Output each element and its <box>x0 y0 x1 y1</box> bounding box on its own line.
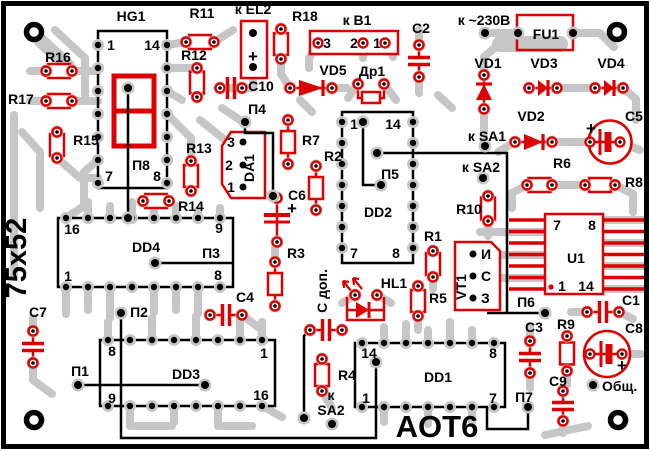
component-pad-hole <box>31 329 35 333</box>
label-p7: П7 <box>515 389 533 405</box>
label-k-sa2-bottom-sa2: SA2 <box>317 402 344 418</box>
label-p4: П4 <box>248 101 266 117</box>
label-dd3: DD3 <box>172 366 200 382</box>
label-r10: R10 <box>456 201 482 217</box>
component-pad-hole <box>353 293 357 297</box>
label-p3: П3 <box>202 245 220 261</box>
pcb-board: HG1 1 14 7 8 П8 R16 R17 R15 R11 R12 R13 … <box>0 0 650 451</box>
solder-dot <box>151 259 159 267</box>
pin-dot <box>193 403 199 409</box>
component-pad-hole <box>314 208 318 212</box>
solder-dot <box>514 29 522 37</box>
label-c10: C10 <box>248 78 274 94</box>
component-pad-hole <box>320 389 324 393</box>
solder-dot <box>269 192 277 200</box>
component-pad-hole <box>550 140 554 144</box>
pin-dot <box>470 251 477 258</box>
label-r11: R11 <box>190 5 215 21</box>
component-pad-hole <box>528 339 532 343</box>
label-r9: R9 <box>557 316 575 332</box>
label-b1-pin2: 2 <box>350 35 358 51</box>
component-pad-hole <box>417 43 421 47</box>
component-pad-hole <box>613 183 617 187</box>
pin-dot <box>95 65 101 71</box>
resistor-body <box>274 33 288 55</box>
component-pad-hole <box>55 156 59 160</box>
label-k-b1: к В1 <box>343 12 372 28</box>
resistor-body <box>184 165 198 187</box>
label-hg1: HG1 <box>117 8 146 24</box>
label-u1-pin1: 1 <box>558 278 566 294</box>
pin-dot <box>259 337 265 343</box>
label-c3: C3 <box>525 319 543 335</box>
label-dr1: Др1 <box>359 63 386 79</box>
component-pad-hole <box>279 57 283 61</box>
label-r4: R4 <box>338 367 356 383</box>
pin-dot <box>95 111 101 117</box>
label-c5: C5 <box>625 108 643 124</box>
solder-dot <box>201 381 209 389</box>
label-r12: R12 <box>181 47 207 63</box>
component-pad-hole <box>273 304 277 308</box>
label-c1: C1 <box>622 292 640 308</box>
label-c8: C8 <box>625 320 643 336</box>
pin-dot <box>339 182 345 188</box>
pin-dot <box>339 140 345 146</box>
component-pad-hole <box>382 82 386 86</box>
solder-dot <box>479 174 487 182</box>
pin-dot <box>339 224 345 230</box>
label-c4: C4 <box>236 289 254 305</box>
solder-dot <box>589 381 597 389</box>
label-vd4: VD4 <box>597 55 624 71</box>
c6-plus-sign: + <box>287 199 297 218</box>
pin-dot <box>129 284 135 290</box>
label-u1: U1 <box>567 250 585 266</box>
pin-dot <box>164 134 170 140</box>
pin-dot <box>403 340 409 346</box>
pin-dot <box>107 215 113 221</box>
pin-dot <box>240 184 247 191</box>
pin-dot <box>164 180 170 186</box>
component-pad-hole <box>617 310 621 314</box>
solder-dot <box>241 118 249 126</box>
label-r3: R3 <box>287 245 305 261</box>
label-r14: R14 <box>178 198 204 214</box>
label-r13: R13 <box>186 140 212 156</box>
pin-dot <box>173 284 179 290</box>
label-u1-pin8: 8 <box>588 217 596 233</box>
component-pad-hole <box>482 107 486 111</box>
component-pad-hole <box>561 389 565 393</box>
component-pad-hole <box>486 194 490 198</box>
component-pad-hole <box>431 249 435 253</box>
component-pad-hole <box>320 357 324 361</box>
label-dd1-pin7: 7 <box>489 390 497 406</box>
pin-dot <box>215 403 221 409</box>
label-k-sa2: к SA2 <box>462 159 500 175</box>
label-u1-pin7: 7 <box>553 217 561 233</box>
pin-dot <box>249 29 257 37</box>
copper-trace <box>545 426 588 435</box>
label-dd1: DD1 <box>424 369 452 385</box>
component-pad-hole <box>240 86 244 90</box>
solder-dot <box>328 420 336 428</box>
pin-dot <box>410 224 416 230</box>
resistor-body <box>560 343 574 365</box>
label-dd2: DD2 <box>364 204 392 220</box>
pin-dot <box>237 403 243 409</box>
component-pad-hole <box>565 334 569 338</box>
label-k-sa2-bottom-k: к <box>327 387 335 403</box>
component-pad-hole <box>330 86 334 90</box>
label-vt1-drain: С <box>481 268 491 284</box>
label-dd4: DD4 <box>132 239 160 255</box>
component-pad-hole <box>513 140 517 144</box>
label-r18: R18 <box>292 8 318 24</box>
pin-dot <box>215 337 221 343</box>
label-p8: П8 <box>132 157 150 173</box>
label-dd1-pin8: 8 <box>489 345 497 361</box>
pin-dot <box>339 203 345 209</box>
label-r5: R5 <box>429 290 447 306</box>
label-p5: П5 <box>381 166 399 182</box>
diode-triangle <box>299 80 323 96</box>
label-vt1-source: И <box>481 246 491 262</box>
pcb-layout-diagram: HG1 1 14 7 8 П8 R16 R17 R15 R11 R12 R13 … <box>0 0 650 451</box>
solder-dot <box>569 29 577 37</box>
label-hg1-pin7: 7 <box>105 168 113 184</box>
component-pad-hole <box>286 162 290 166</box>
mounting-hole-bottom-left <box>27 413 42 428</box>
label-da1-pin1: 1 <box>227 179 235 195</box>
component-pad-hole <box>308 328 312 332</box>
component-pad-hole <box>555 86 559 90</box>
resistor-body <box>190 72 204 94</box>
el2-plus-sign: + <box>248 47 258 66</box>
pin-dot <box>85 284 91 290</box>
label-dd4-pin8: 8 <box>214 267 222 283</box>
pin-dot <box>95 180 101 186</box>
pin-dot <box>151 215 157 221</box>
label-dd2-pin7: 7 <box>350 245 358 261</box>
label-r8: R8 <box>625 174 643 190</box>
label-p6: П6 <box>517 294 535 310</box>
component-pad-hole <box>361 41 365 45</box>
label-fu1: FU1 <box>533 26 560 42</box>
copper-trace <box>300 100 312 112</box>
pin-dot <box>127 403 133 409</box>
solder-dot <box>377 181 385 189</box>
pin-dot <box>63 284 69 290</box>
copper-trace <box>22 132 40 208</box>
component-pad-hole <box>184 40 188 44</box>
label-r17: R17 <box>8 91 34 107</box>
component-pad-hole <box>482 73 486 77</box>
pin-dot <box>470 295 477 302</box>
component-pad-hole <box>550 183 554 187</box>
label-hl1: HL1 <box>381 275 408 291</box>
mounting-hole-top-left <box>27 25 42 40</box>
component-pad-hole <box>340 328 344 332</box>
component-pad-hole <box>316 41 320 45</box>
component-pad-hole <box>356 82 360 86</box>
component-pad-hole <box>561 419 565 423</box>
label-dd1-pin14: 14 <box>361 345 377 361</box>
label-k-el2: к EL2 <box>235 1 272 17</box>
pin-dot <box>410 245 416 251</box>
solder-dot <box>117 309 125 317</box>
label-dd4-pin9: 9 <box>215 220 223 236</box>
label-vt1: VT1 <box>453 274 469 300</box>
label-board-size: 75x52 <box>1 218 33 299</box>
label-r1: R1 <box>424 228 442 244</box>
label-vt1-gate: З <box>481 290 490 306</box>
label-k-sa1: к SA1 <box>468 128 506 144</box>
pin-dot <box>195 215 201 221</box>
component-pad-hole <box>279 27 283 31</box>
label-r7: R7 <box>302 132 320 148</box>
solder-dot <box>74 381 82 389</box>
pin-dot <box>95 88 101 94</box>
pin-dot <box>171 403 177 409</box>
resistor-body <box>315 364 329 386</box>
label-hg1-pin8: 8 <box>153 168 161 184</box>
label-vd5: VD5 <box>319 62 346 78</box>
mounting-hole-top-right <box>610 25 625 40</box>
pin-dot <box>425 340 431 346</box>
pin-dot <box>195 284 201 290</box>
label-dd4-pin16: 16 <box>64 221 80 237</box>
component-pad-hole <box>583 183 587 187</box>
component-pad-hole <box>588 352 592 356</box>
diode-triangle <box>524 134 543 150</box>
solder-dot <box>124 214 132 222</box>
label-dd4-pin1: 1 <box>64 268 72 284</box>
label-vd3: VD3 <box>530 55 557 71</box>
component-pad-hole <box>70 69 74 73</box>
pin-dot <box>95 157 101 163</box>
pin-dot <box>381 340 387 346</box>
component-pad-hole <box>431 275 435 279</box>
label-hg1-pin1: 1 <box>107 37 115 53</box>
pin-dot <box>381 404 387 410</box>
resistor-body <box>589 178 611 192</box>
copper-trace <box>438 95 452 108</box>
component-pad-hole <box>218 86 222 90</box>
pin-dot <box>164 42 170 48</box>
label-b1-pin3: 3 <box>323 35 331 51</box>
pin-dot <box>237 337 243 343</box>
pin-dot <box>469 340 475 346</box>
label-k-230v: к ~230В <box>458 12 511 28</box>
component-pad-hole <box>588 140 592 144</box>
label-vd2: VD2 <box>517 108 544 124</box>
label-da1-pin2: 2 <box>225 157 233 173</box>
pin-dot <box>149 403 155 409</box>
pin-dot <box>107 284 113 290</box>
component-pad-hole <box>593 86 597 90</box>
label-dd2-pin1: 1 <box>350 116 358 132</box>
label-r15: R15 <box>73 132 99 148</box>
label-hg1-pin14: 14 <box>144 37 160 53</box>
resistor-body <box>281 131 295 153</box>
component-pad-hole <box>286 118 290 122</box>
mounting-hole-bottom-right <box>611 413 626 428</box>
diode-triangle <box>476 84 492 100</box>
pin-dot <box>95 42 101 48</box>
component-pad-hole <box>288 86 292 90</box>
pin-dot <box>470 273 477 280</box>
label-c9: C9 <box>549 373 567 389</box>
solder-dot <box>359 118 367 126</box>
component-pad-hole <box>31 361 35 365</box>
label-p1: П1 <box>71 363 89 379</box>
component-pad-hole <box>195 66 199 70</box>
solder-dot <box>541 309 549 317</box>
label-dd3-pin1: 1 <box>260 345 268 361</box>
jumper-wire <box>304 330 309 418</box>
component-pad-hole <box>527 86 531 90</box>
component-pad-hole <box>618 140 622 144</box>
pin-dot <box>164 111 170 117</box>
pin-dot <box>173 215 179 221</box>
pin-dot <box>127 337 133 343</box>
pin-dot <box>339 119 345 125</box>
pin-dot <box>447 340 453 346</box>
pin-dot <box>217 284 223 290</box>
component-pad-hole <box>44 69 48 73</box>
pin-dot <box>240 139 247 146</box>
label-dd1-pin1: 1 <box>362 390 370 406</box>
pin-dot <box>164 65 170 71</box>
pin-dot <box>410 119 416 125</box>
label-dd2-pin8: 8 <box>392 245 400 261</box>
label-c7: C7 <box>29 304 47 320</box>
component-pad-hole <box>273 260 277 264</box>
component-pad-hole <box>417 75 421 79</box>
pin-dot <box>171 337 177 343</box>
component-pad-hole <box>212 40 216 44</box>
label-dd3-pin9: 9 <box>108 390 116 406</box>
pin-dot <box>410 203 416 209</box>
c5-plus-sign: + <box>586 119 596 138</box>
solder-dot <box>373 149 381 157</box>
c8-plus-sign: + <box>617 356 627 375</box>
component-pad-hole <box>375 293 379 297</box>
u1-pin1-dot <box>548 284 553 289</box>
component-pad-hole <box>416 284 420 288</box>
label-p2: П2 <box>130 304 148 320</box>
component-pad-hole <box>621 86 625 90</box>
component-pad-hole <box>70 99 74 103</box>
component-pad-hole <box>167 199 171 203</box>
label-da1-pin3: 3 <box>227 134 235 150</box>
component-pad-hole <box>240 313 244 317</box>
component-pad-hole <box>55 130 59 134</box>
pin-dot <box>151 284 157 290</box>
resistor-body <box>268 273 282 295</box>
label-dd3-pin8: 8 <box>108 343 116 359</box>
pin-dot <box>149 337 155 343</box>
solder-dot <box>300 414 308 422</box>
label-r6: R6 <box>553 155 571 171</box>
label-dd3-pin16: 16 <box>253 387 269 403</box>
component-pad-hole <box>208 313 212 317</box>
component-pad-hole <box>195 95 199 99</box>
pin-dot <box>164 88 170 94</box>
label-c2: C2 <box>412 20 430 36</box>
label-dd2-pin14: 14 <box>385 116 401 132</box>
pin-dot <box>410 140 416 146</box>
pin-dot <box>85 215 91 221</box>
component-pad-hole <box>416 314 420 318</box>
resistor-body <box>411 290 425 312</box>
component-pad-hole <box>525 183 529 187</box>
label-r16: R16 <box>45 49 71 65</box>
component-pad-hole <box>486 219 490 223</box>
component-pad-hole <box>189 189 193 193</box>
pin-dot <box>339 245 345 251</box>
pin-dot <box>164 157 170 163</box>
label-r2: R2 <box>324 148 342 164</box>
label-da1: DA1 <box>241 154 257 182</box>
component-pad-hole <box>528 371 532 375</box>
label-vd1: VD1 <box>474 55 501 71</box>
component-pad-hole <box>141 199 145 203</box>
component-pad-hole <box>585 310 589 314</box>
label-board-name: AOT6 <box>396 409 479 444</box>
component-pad-hole <box>44 99 48 103</box>
component-pad-hole <box>275 240 279 244</box>
resistor-body <box>309 177 323 199</box>
component-pad-hole <box>189 159 193 163</box>
label-b1-pin1: 1 <box>373 35 381 51</box>
component-pad-hole <box>383 41 387 45</box>
pin-dot <box>193 337 199 343</box>
label-u1-pin14: 14 <box>578 278 594 294</box>
solder-dot <box>481 29 489 37</box>
copper-trace <box>200 120 225 140</box>
label-common: Общ. <box>602 378 637 394</box>
label-c-dop: С доп. <box>314 269 330 313</box>
solder-dot <box>124 84 132 92</box>
pin-dot <box>410 161 416 167</box>
pin-dot <box>259 403 265 409</box>
component-pad-hole <box>314 164 318 168</box>
pin-dot <box>410 182 416 188</box>
